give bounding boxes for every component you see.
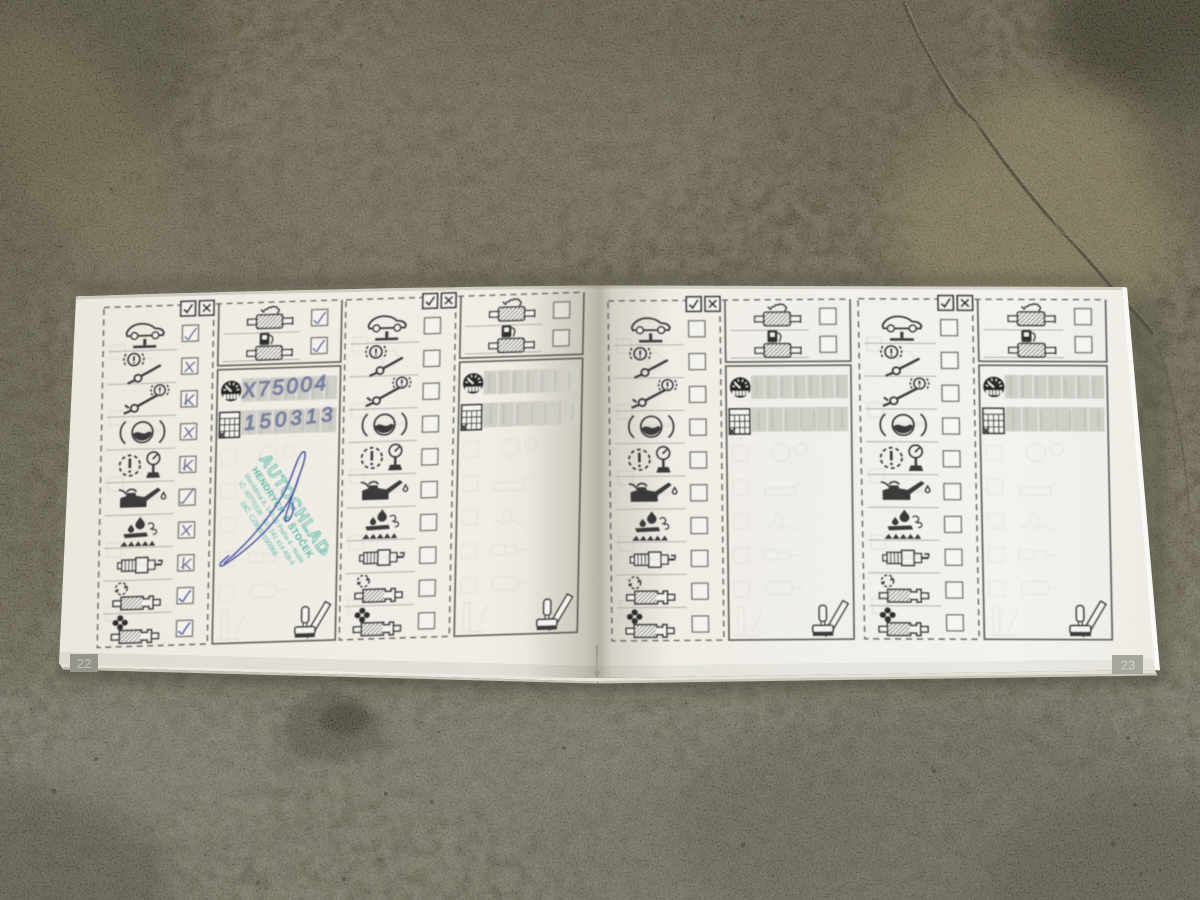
svg-text:22: 22 — [77, 656, 91, 671]
svg-text:23: 23 — [1121, 658, 1135, 673]
